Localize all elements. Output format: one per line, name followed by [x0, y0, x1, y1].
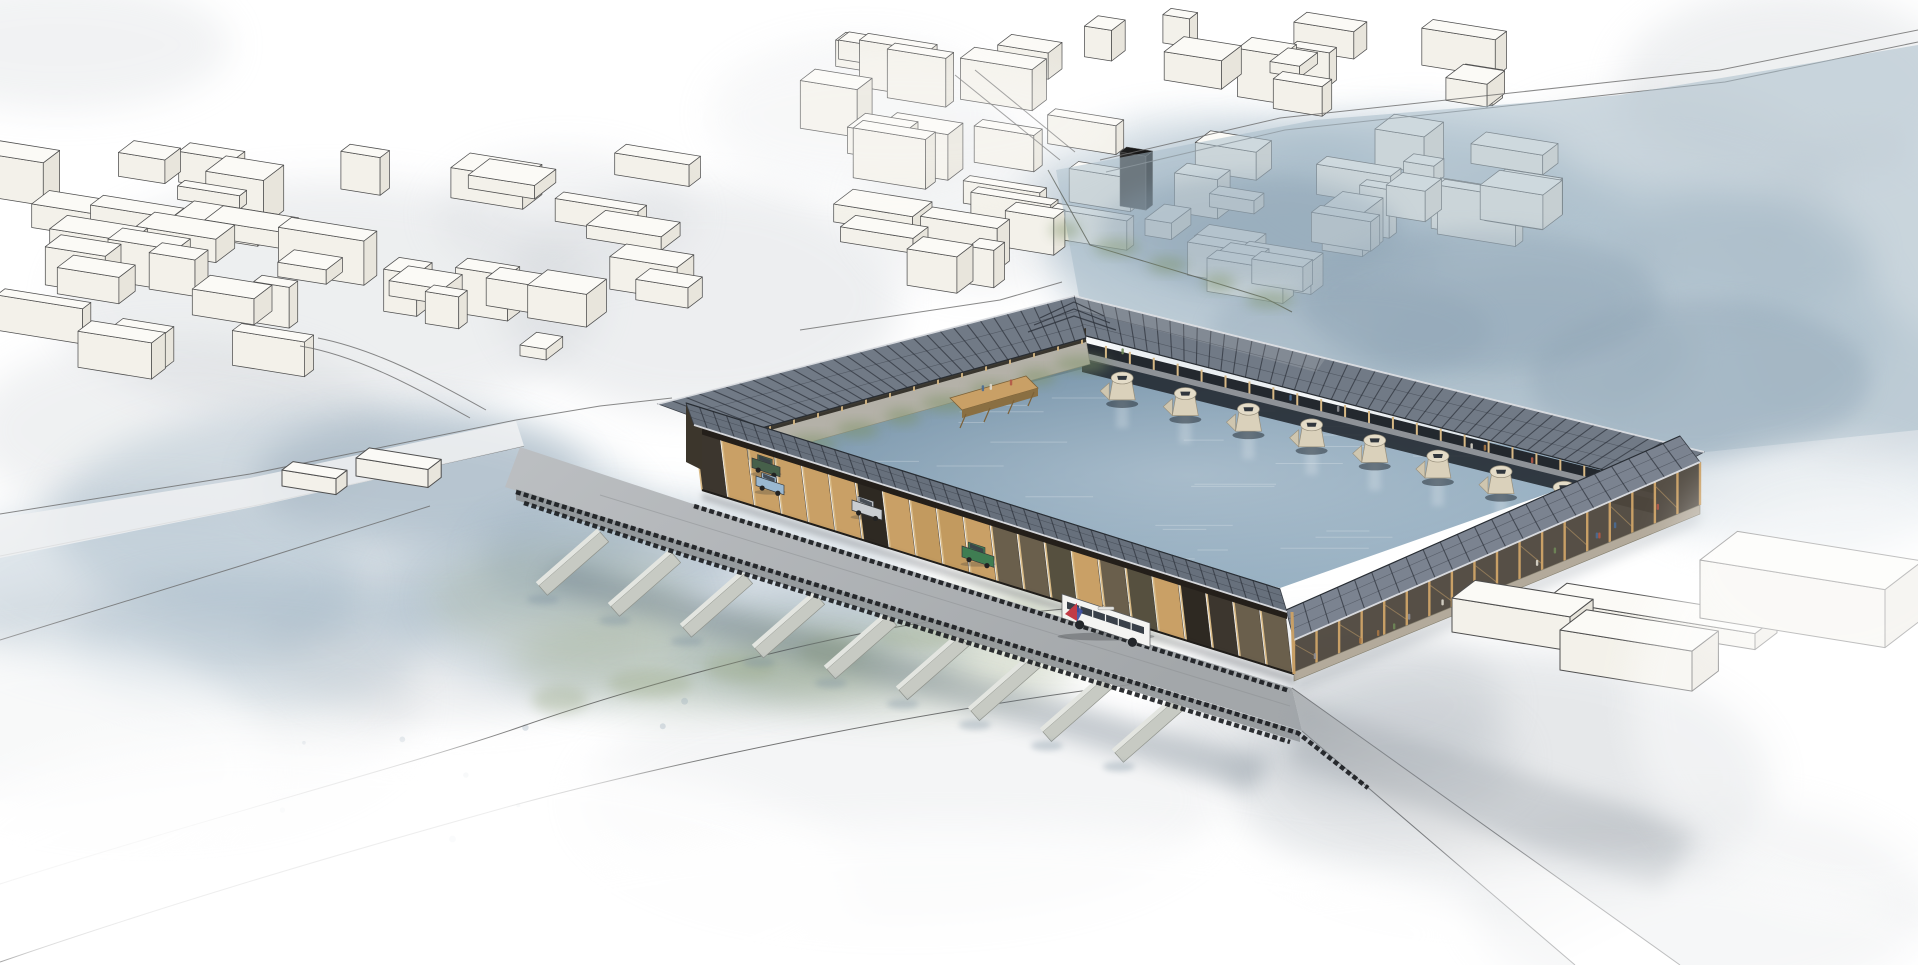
fin-reflection [959, 720, 991, 730]
pier-neck [1370, 438, 1380, 442]
person-figure [1289, 395, 1291, 401]
bus-roof-hatch [1098, 607, 1114, 610]
building-front-face [1085, 26, 1112, 61]
basin-bank-vegetation [885, 409, 921, 425]
watercolor-spatter [660, 723, 666, 729]
person-figure [1010, 380, 1012, 386]
car-wheel [984, 563, 989, 568]
person-figure [1554, 548, 1556, 554]
pier-water-shadow [1485, 494, 1517, 502]
bus-wheel [1075, 620, 1084, 629]
pier-neck [1433, 454, 1443, 458]
upper-bank-vegetation [1093, 240, 1139, 256]
pier-neck [1307, 423, 1317, 427]
lower-bank-vegetation [608, 670, 692, 698]
car-wheel [756, 467, 761, 472]
person-figure [982, 385, 984, 391]
person-figure [1377, 630, 1379, 636]
fin-reflection [887, 699, 919, 709]
upper-bank-vegetation [1202, 275, 1235, 291]
person-figure [1596, 532, 1598, 538]
pier-water-shadow [1106, 400, 1138, 408]
rendering-canvas [0, 0, 1918, 965]
lower-bank-vegetation [532, 686, 588, 714]
upper-bank-vegetation [1148, 257, 1188, 273]
person-figure [1359, 638, 1361, 644]
basin-bank-vegetation [836, 422, 879, 438]
person-figure [1408, 614, 1410, 620]
pier-neck [1496, 470, 1506, 474]
car-wheel [856, 510, 861, 515]
pier-water-shadow [1232, 431, 1264, 439]
pier-water-shadow [1359, 462, 1391, 470]
person-figure [1531, 457, 1533, 463]
watercolor-spatter [399, 737, 405, 743]
person-figure [1337, 406, 1339, 412]
car-wheel [873, 516, 878, 521]
corner-post [1292, 612, 1294, 674]
car-wheel [966, 557, 971, 562]
pier-neck [1180, 392, 1190, 396]
pier-neck [1117, 376, 1127, 380]
person-figure [1657, 504, 1659, 510]
person-figure [1393, 623, 1395, 629]
fin-reflection [599, 615, 631, 625]
car-wheel [760, 485, 765, 490]
building-front-face [341, 151, 380, 195]
fin-reflection [671, 636, 703, 646]
person-figure [1121, 348, 1123, 354]
building-side-face [289, 281, 298, 328]
person-figure [990, 384, 992, 390]
pier-water-shadow [1422, 478, 1454, 486]
pier-neck [1244, 407, 1254, 411]
white-fade-wash [680, 50, 1120, 190]
fin-reflection [1031, 741, 1063, 751]
architectural-rendering [0, 0, 1918, 965]
building-front-face [425, 292, 458, 329]
person-figure [1484, 445, 1486, 451]
person-figure [1441, 599, 1443, 605]
person-figure [1536, 560, 1538, 566]
upper-bank-vegetation [1246, 292, 1294, 308]
fin-reflection [815, 678, 847, 688]
person-figure [1614, 522, 1616, 528]
watercolor-spatter [681, 698, 688, 705]
basin-bank-vegetation [1054, 356, 1109, 372]
person-figure [1598, 532, 1600, 538]
pier-water-shadow [1169, 416, 1201, 424]
bus-wheel [1128, 638, 1137, 647]
lower-bank-vegetation [704, 653, 776, 681]
fin-reflection [1103, 762, 1135, 772]
building-side-face [380, 151, 389, 196]
pier-water-shadow [1296, 447, 1328, 455]
person-figure [1314, 653, 1316, 659]
fin-reflection [743, 657, 775, 667]
upper-bank-vegetation [1050, 222, 1081, 238]
car-wheel [775, 491, 780, 496]
fin-reflection [527, 595, 559, 605]
